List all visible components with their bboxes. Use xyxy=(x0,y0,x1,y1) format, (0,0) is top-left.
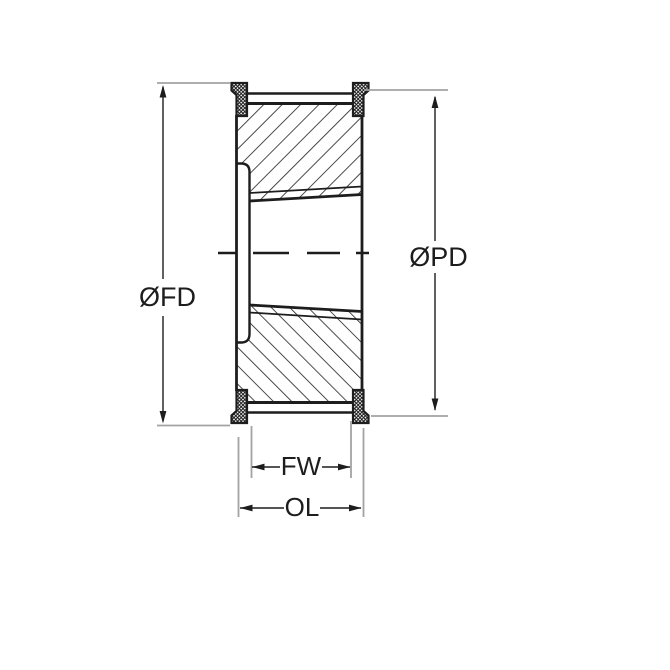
bush-flange-step-line xyxy=(237,164,250,343)
fw-arrow-right xyxy=(338,464,351,471)
ol-arrow-left xyxy=(240,505,253,512)
upper-hub-section-hatch xyxy=(237,104,362,201)
dimension-face-width: FW xyxy=(252,421,352,481)
flange-bottom-right xyxy=(353,390,369,423)
flange-top-left xyxy=(232,83,248,116)
opd-arrow-down xyxy=(432,399,439,412)
opd-arrow-up xyxy=(432,96,439,109)
opd-label: ØPD xyxy=(409,242,468,272)
fw-arrow-left xyxy=(252,464,265,471)
timing-pulley-cross-section-drawing: ØFD ØPD FW OL xyxy=(0,0,670,670)
ofd-arrow-up xyxy=(160,85,167,98)
flange-bottom-left xyxy=(232,390,248,423)
ofd-arrow-down xyxy=(160,411,167,424)
pulley-body xyxy=(218,83,369,423)
ofd-label: ØFD xyxy=(139,282,196,312)
lower-hub-section-hatch xyxy=(237,305,362,403)
dimension-flange-diameter: ØFD xyxy=(139,83,230,426)
dimension-pitch-diameter: ØPD xyxy=(364,90,468,416)
ol-arrow-right xyxy=(349,505,362,512)
flange-top-right xyxy=(353,83,369,116)
technical-drawing-canvas: ØFD ØPD FW OL xyxy=(0,0,670,670)
fw-label: FW xyxy=(281,451,322,481)
ol-label: OL xyxy=(285,492,320,522)
